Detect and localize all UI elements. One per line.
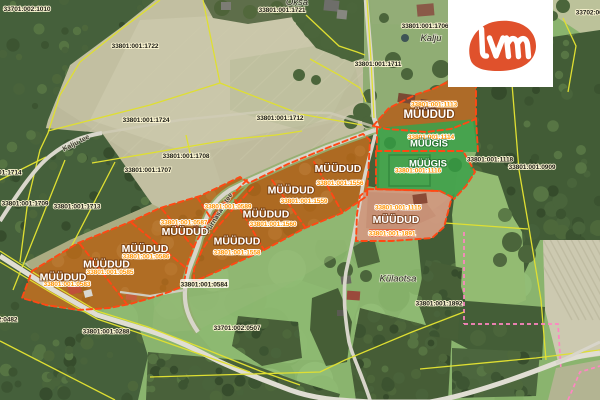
svg-text:33801:001:1714: 33801:001:1714 (0, 170, 22, 177)
svg-text:MÜÜDUD: MÜÜDUD (268, 184, 315, 197)
svg-text:33801:001:1559: 33801:001:1559 (281, 198, 328, 205)
svg-text:33801:001:1118: 33801:001:1118 (467, 157, 514, 164)
svg-text:33801:001:1891: 33801:001:1891 (369, 231, 416, 238)
svg-text:MÜÜGIS: MÜÜGIS (409, 159, 447, 170)
svg-text:MÜÜDUD: MÜÜDUD (243, 208, 290, 221)
svg-text:33801:001:1560: 33801:001:1560 (250, 221, 297, 228)
svg-text:MÜÜDUD: MÜÜDUD (214, 235, 261, 248)
svg-text:MÜÜDUD: MÜÜDUD (122, 242, 169, 255)
svg-text:33801:001:1707: 33801:001:1707 (125, 167, 172, 174)
svg-text:MÜÜGIS: MÜÜGIS (410, 139, 448, 150)
svg-text:Oksa: Oksa (286, 0, 308, 8)
svg-text:MÜÜDUD: MÜÜDUD (315, 162, 362, 175)
svg-text:MÜÜDUD: MÜÜDUD (83, 257, 130, 270)
svg-text:MÜÜDUD: MÜÜDUD (162, 225, 209, 238)
svg-text:33702:001:: 33702:001: (576, 10, 600, 17)
svg-text:MÜÜDUD: MÜÜDUD (40, 271, 87, 284)
svg-text:33801:001:1708: 33801:001:1708 (163, 153, 210, 160)
svg-text:33701:002:0507: 33701:002:0507 (214, 325, 261, 332)
svg-text:33801:001:1556: 33801:001:1556 (317, 180, 364, 187)
svg-text:33801:001:1711: 33801:001:1711 (355, 61, 402, 68)
svg-text:33801:001:1712: 33801:001:1712 (257, 115, 304, 122)
svg-text:33801:001:1722: 33801:001:1722 (112, 43, 159, 50)
svg-text:Külaotsa: Külaotsa (380, 274, 417, 285)
svg-text:MÜÜDUD: MÜÜDUD (403, 108, 454, 121)
svg-text:33801:001:1558: 33801:001:1558 (214, 250, 261, 257)
svg-text:33801:001:1892: 33801:001:1892 (416, 301, 463, 308)
svg-text:33801:001:1113: 33801:001:1113 (411, 102, 458, 109)
svg-text:33801:001:1115: 33801:001:1115 (375, 205, 422, 212)
svg-text:MÜÜDUD: MÜÜDUD (373, 213, 420, 226)
svg-text:33801:001:1713: 33801:001:1713 (54, 204, 101, 211)
svg-text:Kalju: Kalju (420, 33, 442, 44)
svg-text:33801:001:1721: 33801:001:1721 (259, 7, 306, 14)
svg-text:33801:001:1709: 33801:001:1709 (2, 201, 49, 208)
svg-text:33801:001:1706: 33801:001:1706 (402, 23, 449, 30)
svg-text:33801:001:0288: 33801:001:0288 (83, 329, 130, 336)
svg-text:33801:002:0482: 33801:002:0482 (0, 317, 18, 324)
svg-text:33801:001:1724: 33801:001:1724 (123, 117, 170, 124)
svg-text:33801:001:0584: 33801:001:0584 (181, 282, 228, 289)
svg-text:33801:001:0909: 33801:001:0909 (509, 164, 556, 171)
svg-text:33701:002:1010: 33701:002:1010 (4, 6, 51, 13)
